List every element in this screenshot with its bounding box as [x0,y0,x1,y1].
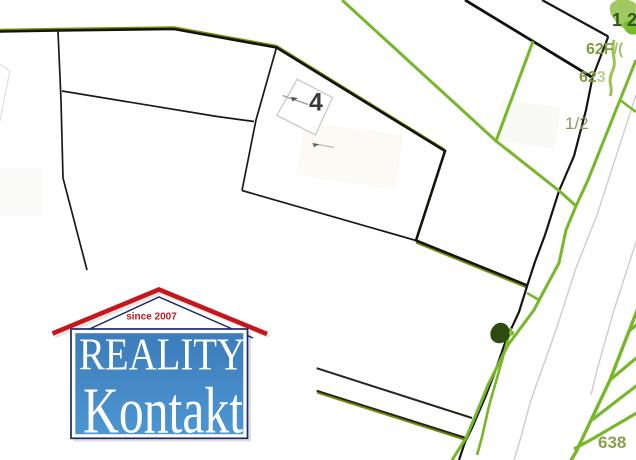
svg-text:638: 638 [598,433,626,452]
svg-text:4: 4 [309,89,323,117]
svg-text:623: 623 [579,69,606,86]
svg-text:1/2: 1/2 [565,114,589,133]
svg-text:Kontakt: Kontakt [83,375,243,448]
svg-text:REALITY: REALITY [79,329,245,380]
svg-text:1 2: 1 2 [612,10,636,30]
svg-text:since 2007: since 2007 [126,312,177,323]
svg-text:62F/(: 62F/( [586,41,624,58]
